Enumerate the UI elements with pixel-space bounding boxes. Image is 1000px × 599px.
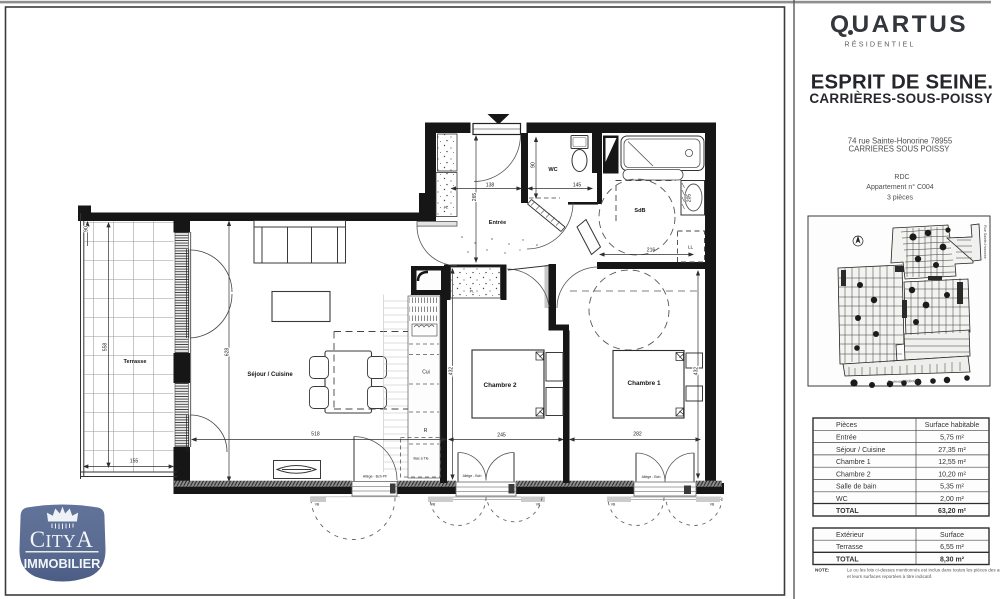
svg-text:Chambre 1: Chambre 1 <box>627 380 660 387</box>
svg-text:63,20 m²: 63,20 m² <box>938 508 967 515</box>
svg-text:Allège - Bch: Allège - Bch <box>642 475 661 479</box>
svg-text:VB: VB <box>431 503 436 507</box>
svg-text:Séjour / Cuisine: Séjour / Cuisine <box>836 447 886 454</box>
svg-text:VB: VB <box>315 503 320 507</box>
svg-text:Extérieur: Extérieur <box>836 532 865 539</box>
svg-text:Salle de bain: Salle de bain <box>836 484 877 491</box>
svg-text:IMMOBILIER: IMMOBILIER <box>24 556 101 571</box>
svg-text:6,55 m²: 6,55 m² <box>940 544 964 551</box>
svg-text:RÉSIDENTIEL: RÉSIDENTIEL <box>844 40 915 49</box>
svg-text:Rue Sainte-Honorine: Rue Sainte-Honorine <box>983 225 987 259</box>
svg-text:CARRIÈRES-SOUS-POISSY: CARRIÈRES-SOUS-POISSY <box>809 91 992 106</box>
svg-text:Surface: Surface <box>940 532 964 539</box>
svg-text:12,55 m²: 12,55 m² <box>938 459 966 466</box>
svg-text:TOTAL: TOTAL <box>836 508 859 515</box>
svg-text:205: 205 <box>687 194 693 203</box>
svg-text:LL: LL <box>688 245 694 251</box>
svg-text:3 pièces: 3 pièces <box>887 195 914 202</box>
svg-text:265: 265 <box>472 193 478 202</box>
svg-text:CARRIERES SOUS POISSY: CARRIERES SOUS POISSY <box>849 145 951 154</box>
svg-text:8,30 m²: 8,30 m² <box>940 557 965 564</box>
svg-text:Cui: Cui <box>422 370 430 376</box>
svg-text:5,75 m²: 5,75 m² <box>940 435 964 442</box>
svg-text:Entrée: Entrée <box>489 220 506 226</box>
svg-text:245: 245 <box>497 433 506 439</box>
svg-text:145: 145 <box>573 183 582 189</box>
svg-text:138: 138 <box>486 183 495 189</box>
svg-text:Chambre 2: Chambre 2 <box>483 382 516 389</box>
svg-text:558: 558 <box>103 343 109 352</box>
svg-text:WC: WC <box>836 496 848 503</box>
svg-text:R: R <box>424 428 428 434</box>
svg-text:282: 282 <box>633 432 642 438</box>
svg-text:Bac a Tle: Bac a Tle <box>413 457 428 461</box>
svg-text:TOTAL: TOTAL <box>836 557 859 564</box>
svg-text:VB: VB <box>536 503 541 507</box>
svg-text:628: 628 <box>225 348 231 357</box>
svg-text:155: 155 <box>130 459 139 465</box>
svg-text:Appartement n° C004: Appartement n° C004 <box>866 183 934 191</box>
svg-text:VB: VB <box>611 503 616 507</box>
svg-text:27,35 m²: 27,35 m² <box>938 447 966 454</box>
svg-text:Terrasse: Terrasse <box>836 544 863 551</box>
svg-text:5,35 m²: 5,35 m² <box>940 484 964 491</box>
svg-text:Séjour / Cuisine: Séjour / Cuisine <box>247 372 293 378</box>
svg-text:518: 518 <box>311 432 320 438</box>
svg-text:432: 432 <box>449 367 455 376</box>
svg-text:Allège - Bch PF: Allège - Bch PF <box>363 475 387 479</box>
svg-text:2,00 m²: 2,00 m² <box>940 496 964 503</box>
svg-text:90: 90 <box>531 162 537 168</box>
svg-text:216: 216 <box>647 248 656 254</box>
svg-text:RDC: RDC <box>894 174 909 181</box>
svg-text:SdB: SdB <box>634 208 645 214</box>
svg-text:et leurs surfaces reportées à: et leurs surfaces reportées à titre indi… <box>847 574 932 579</box>
svg-text:Pièces: Pièces <box>836 422 858 429</box>
svg-text:PL: PL <box>444 206 449 210</box>
svg-text:90: 90 <box>84 226 90 232</box>
svg-text:10,20 m²: 10,20 m² <box>938 471 966 478</box>
svg-text:Allège - Bch: Allège - Bch <box>463 474 482 478</box>
svg-text:VB: VB <box>710 503 715 507</box>
svg-text:432: 432 <box>694 367 700 376</box>
svg-text:Terrasse: Terrasse <box>124 359 147 365</box>
svg-text:Surface habitable: Surface habitable <box>925 422 980 429</box>
svg-text:NOTE:: NOTE: <box>815 568 830 573</box>
svg-text:Chambre 2: Chambre 2 <box>836 471 871 478</box>
svg-text:Le ou les lots ci-dessus menti: Le ou les lots ci-dessus mentionnés est … <box>847 568 1000 573</box>
svg-text:WC: WC <box>548 167 557 173</box>
svg-text:CITYA: CITYA <box>30 527 94 552</box>
svg-text:Entrée: Entrée <box>836 435 857 442</box>
svg-text:Chambre 1: Chambre 1 <box>836 459 871 466</box>
